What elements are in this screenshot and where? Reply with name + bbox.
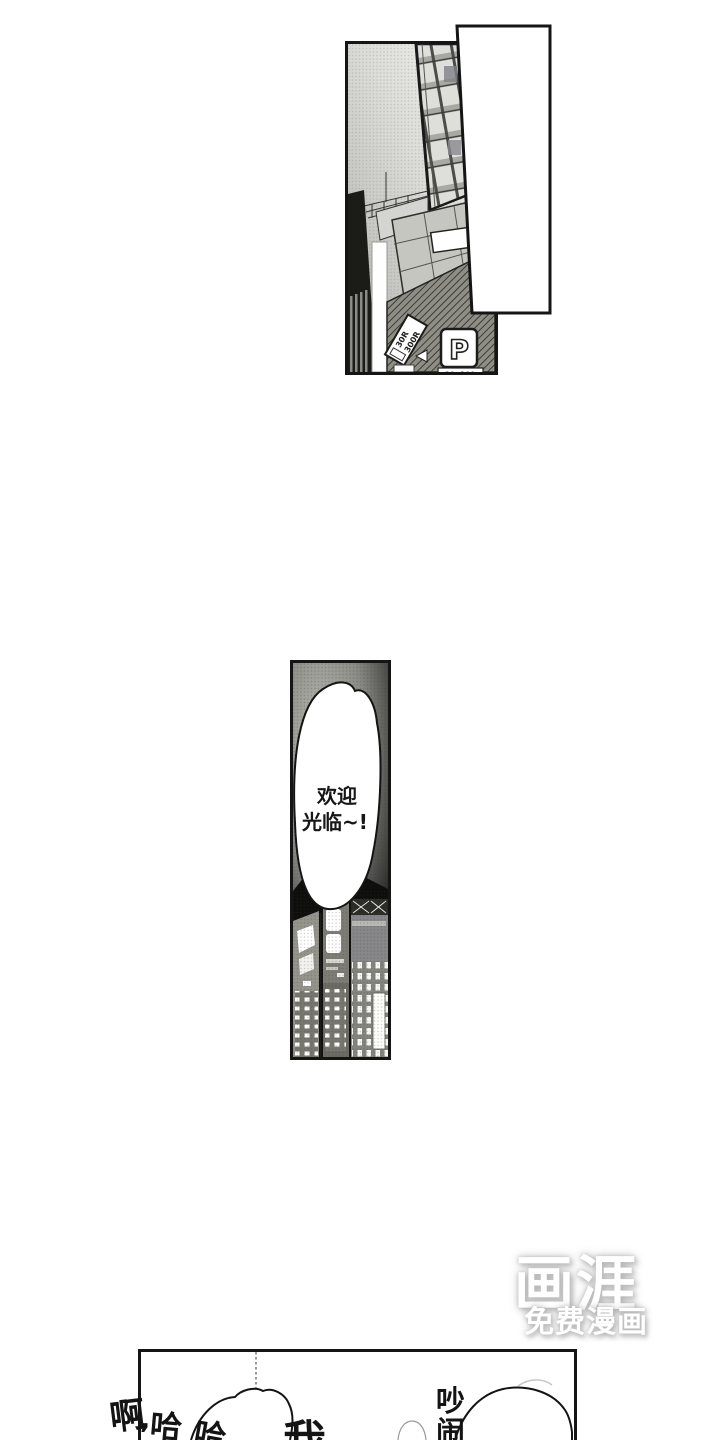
- parking-sign: P 30..300: [438, 329, 483, 372]
- white-column-sign: [372, 242, 387, 372]
- shout-partial-char: 我: [283, 1421, 326, 1440]
- right-bubble: [455, 1388, 572, 1440]
- greeting-line1: 欢迎: [316, 784, 357, 808]
- noisy-char-1: 吵: [436, 1387, 465, 1416]
- faint-cloud-arc: [518, 1380, 552, 1386]
- svg-text:30..300: 30..300: [445, 371, 476, 373]
- panel-night-city: 欢迎 光临~!: [290, 660, 391, 1060]
- laugh-char-2: 哈: [149, 1410, 184, 1440]
- noisy-char-2: 闹: [436, 1418, 465, 1440]
- parking-p-icon: P: [449, 335, 469, 366]
- panel-blank-overlay: [455, 24, 553, 316]
- manga-page: 30R 300R P 30..300: [0, 0, 720, 1440]
- noisy-text: 吵 闹: [436, 1387, 465, 1440]
- night-artwork: 欢迎 光临~!: [293, 663, 388, 1057]
- small-bubble: [398, 1421, 426, 1440]
- small-plate: [394, 365, 414, 372]
- laugh-char-3: 哈: [191, 1417, 228, 1440]
- watermark-tagline: 免费漫画: [524, 1297, 648, 1341]
- greeting-line2: 光临~!: [301, 810, 368, 834]
